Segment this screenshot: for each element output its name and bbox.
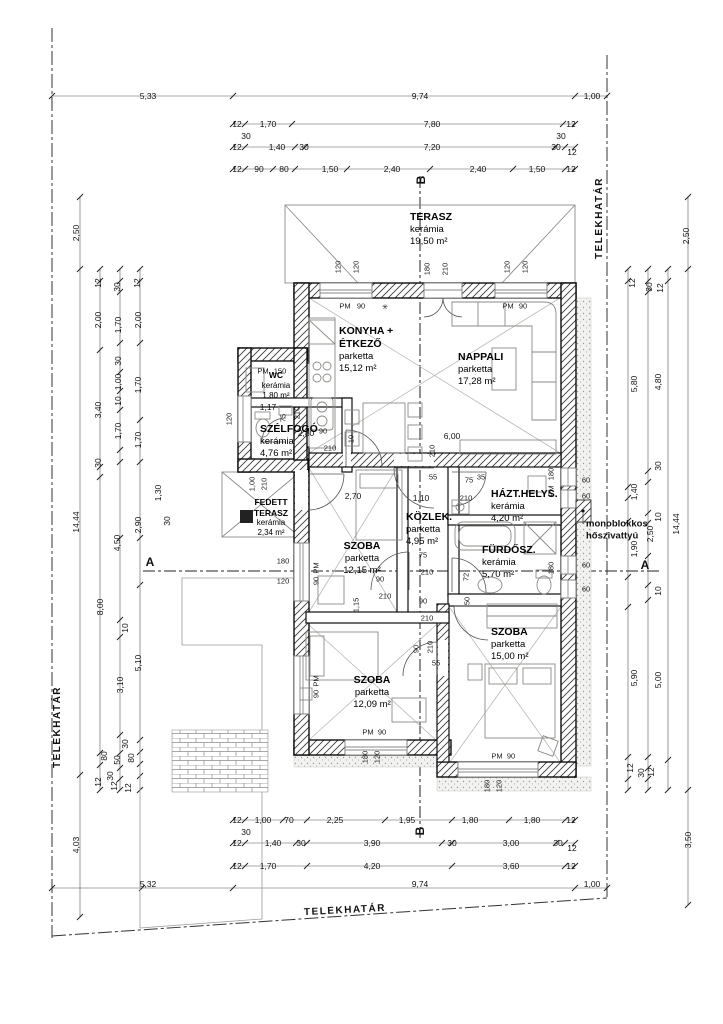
dim-label: 8,00 bbox=[96, 599, 105, 616]
dim-label: 12 bbox=[232, 165, 241, 174]
dim-label: 1,17 bbox=[260, 403, 277, 412]
detail-label: 35 bbox=[477, 473, 485, 481]
dim-label: 1,40 bbox=[630, 484, 639, 501]
dim-label: 30 bbox=[106, 771, 115, 780]
dim-label: 12 bbox=[232, 143, 241, 152]
dim-label: 2,25 bbox=[327, 816, 344, 825]
section-marker: A bbox=[146, 556, 155, 568]
dim-label: 30 bbox=[114, 356, 123, 365]
dim-label: 30 bbox=[296, 839, 305, 848]
dim-label: 5,90 bbox=[630, 670, 639, 687]
dim-label: 1,00 bbox=[114, 374, 123, 391]
dim-label: 3,60 bbox=[503, 862, 520, 871]
dim-label: 5,32 bbox=[140, 880, 157, 889]
dim-label: 2,40 bbox=[470, 165, 487, 174]
dim-label: 80 bbox=[127, 753, 136, 762]
dim-label: 30 bbox=[241, 132, 250, 141]
detail-label: 180 bbox=[277, 557, 290, 565]
dim-label: 12 bbox=[110, 781, 119, 790]
dim-label: 12 bbox=[232, 120, 241, 129]
detail-label: 75 bbox=[279, 414, 287, 422]
dim-label: 3,50 bbox=[684, 832, 693, 849]
detail-label: 210 bbox=[260, 478, 268, 491]
dim-label: 12 bbox=[566, 816, 575, 825]
dim-label: 9,74 bbox=[412, 880, 429, 889]
detail-label: 120 bbox=[334, 261, 342, 274]
dim-label: 30 bbox=[299, 143, 308, 152]
detail-label: 180 bbox=[547, 468, 555, 481]
detail-label: PM bbox=[312, 675, 320, 686]
dim-label: 30 bbox=[556, 132, 565, 141]
dim-label: 5,33 bbox=[140, 92, 157, 101]
detail-label: 90 bbox=[378, 728, 386, 736]
dim-label: 5,10 bbox=[134, 655, 143, 672]
dim-label: 6,00 bbox=[444, 432, 461, 441]
detail-label: 210 bbox=[441, 263, 449, 276]
dim-label: 12 bbox=[232, 816, 241, 825]
dim-label: 30 bbox=[241, 828, 250, 837]
room-label: FEDETTTERASZkerámia2,34 m² bbox=[254, 497, 288, 538]
dim-label: 90 bbox=[254, 165, 263, 174]
dim-label: 12 bbox=[566, 862, 575, 871]
detail-label: 60 bbox=[582, 561, 590, 569]
detail-label: 180 bbox=[423, 263, 431, 276]
detail-label: 120 bbox=[495, 780, 503, 793]
detail-label: 90 bbox=[312, 690, 320, 698]
dim-label: 1,40 bbox=[269, 143, 286, 152]
dim-label: 1,00 bbox=[584, 92, 601, 101]
dim-label: 3,10 bbox=[116, 677, 125, 694]
detail-label: 120 bbox=[503, 261, 511, 274]
detail-label: 90 bbox=[519, 302, 527, 310]
room-label: SZOBAparketta12,09 m² bbox=[353, 674, 391, 711]
detail-label: 180 bbox=[547, 562, 555, 575]
detail-label: 90 bbox=[319, 427, 327, 435]
detail-label: 120 bbox=[225, 413, 233, 426]
dim-label: 9,74 bbox=[412, 92, 429, 101]
detail-label: ✳ bbox=[382, 303, 388, 311]
dim-label: 2,70 bbox=[345, 492, 362, 501]
dim-label: 10 bbox=[121, 623, 130, 632]
dim-label: 12 bbox=[566, 165, 575, 174]
room-label: NAPPALIparketta17,28 m² bbox=[458, 351, 503, 388]
floor-plan-page: 5,339,741,00121,707,80123030121,40307,20… bbox=[0, 0, 723, 1024]
detail-label: 55 bbox=[432, 659, 440, 667]
dim-label: 12 bbox=[124, 783, 133, 792]
dim-label: 12 bbox=[626, 763, 635, 772]
dim-label: 14,44 bbox=[672, 513, 681, 534]
dim-label: 12 bbox=[567, 844, 576, 853]
dim-label: 1,10 bbox=[413, 494, 430, 503]
detail-label: 75 bbox=[419, 551, 427, 559]
boundary-label: TELEKHATÁR bbox=[304, 904, 386, 918]
dim-label: 80 bbox=[100, 751, 109, 760]
dim-label: 1,50 bbox=[322, 165, 339, 174]
dim-label: 12 bbox=[94, 777, 103, 786]
detail-label: 210 bbox=[428, 445, 436, 458]
room-label: KÖZLEK.parketta4,95 m² bbox=[406, 511, 452, 548]
dim-label: 3,00 bbox=[503, 839, 520, 848]
dim-label: 30 bbox=[637, 768, 646, 777]
detail-label: 210 bbox=[293, 407, 301, 420]
dim-label: 1,00 bbox=[584, 880, 601, 889]
detail-label: 90 bbox=[312, 577, 320, 585]
dim-label: 30 bbox=[551, 143, 560, 152]
dim-label: 1,70 bbox=[114, 423, 123, 440]
dim-label: 1,70 bbox=[260, 120, 277, 129]
dim-label: 4,50 bbox=[113, 535, 122, 552]
dim-label: 12 bbox=[94, 278, 103, 287]
dim-label: 12 bbox=[566, 120, 575, 129]
boundary-label: TELEKHATÁR bbox=[595, 177, 605, 259]
room-label: SZOBAparketta15,00 m² bbox=[491, 626, 529, 663]
room-label: KONYHA +ÉTKEZŐparketta15,12 m² bbox=[339, 325, 393, 375]
dim-label: 30 bbox=[163, 516, 172, 525]
dim-label: 12 bbox=[628, 278, 637, 287]
detail-label: 120 bbox=[352, 261, 360, 274]
dim-label: 1,40 bbox=[265, 839, 282, 848]
detail-label: PM bbox=[502, 302, 513, 310]
detail-label: 120 bbox=[521, 261, 529, 274]
detail-label: 210 bbox=[421, 568, 434, 576]
detail-label: 50 bbox=[463, 597, 471, 605]
dim-label: 4,03 bbox=[72, 837, 81, 854]
dim-label: 1,70 bbox=[260, 862, 277, 871]
detail-label: 90 bbox=[507, 752, 515, 760]
detail-label: 72 bbox=[462, 573, 470, 581]
detail-label: PM bbox=[362, 728, 373, 736]
dim-label: 1,00 bbox=[255, 816, 272, 825]
detail-label: 75 bbox=[465, 476, 473, 484]
dim-label: 1,30 bbox=[154, 485, 163, 502]
dim-label: 12 bbox=[232, 839, 241, 848]
dim-label: 1,70 bbox=[134, 432, 143, 449]
dim-label: 10 bbox=[114, 396, 123, 405]
detail-label: PM bbox=[312, 562, 320, 573]
dim-label: 7,20 bbox=[424, 143, 441, 152]
detail-label: 120 bbox=[277, 577, 290, 585]
dim-label: 70 bbox=[284, 816, 293, 825]
section-marker: B bbox=[414, 827, 426, 836]
room-label: TERASZkerámia19,50 m² bbox=[410, 211, 452, 248]
dim-label: 5,00 bbox=[654, 672, 663, 689]
section-marker: A bbox=[641, 559, 650, 571]
detail-label: PM bbox=[339, 302, 350, 310]
dim-label: 30 bbox=[447, 839, 456, 848]
room-label: SZÉLFOGÓkerámia4,76 m² bbox=[260, 423, 318, 460]
dim-label: 1,70 bbox=[134, 377, 143, 394]
detail-label: 210 bbox=[324, 444, 337, 452]
dim-label: 10 bbox=[654, 512, 663, 521]
dim-label: 2,00 bbox=[134, 312, 143, 329]
detail-label: 90 bbox=[419, 597, 427, 605]
dim-label: 1,70 bbox=[114, 317, 123, 334]
detail-label: 55 bbox=[429, 473, 437, 481]
dim-label: 3,40 bbox=[94, 402, 103, 419]
dim-label: 12 bbox=[656, 283, 665, 292]
annotation: monoblokkos bbox=[586, 519, 648, 529]
label-layer: 5,339,741,00121,707,80123030121,40307,20… bbox=[0, 0, 723, 1024]
detail-label: 180 bbox=[483, 780, 491, 793]
detail-label: 1,15 bbox=[352, 598, 360, 613]
room-label: FÜRDŐSZ.kerámia5,70 m² bbox=[482, 544, 536, 581]
dim-label: 2,90 bbox=[134, 517, 143, 534]
detail-label: 120 bbox=[373, 751, 381, 764]
detail-label: 1,00 bbox=[248, 477, 256, 492]
dim-label: 4,80 bbox=[654, 374, 663, 391]
dim-label: 30 bbox=[113, 282, 122, 291]
detail-label: 210 bbox=[426, 641, 434, 654]
dim-label: 3,90 bbox=[364, 839, 381, 848]
dim-label: 5,80 bbox=[630, 376, 639, 393]
dim-label: 30 bbox=[654, 461, 663, 470]
detail-label: 60 bbox=[582, 476, 590, 484]
dim-label: 4,20 bbox=[364, 862, 381, 871]
dim-label: 12 bbox=[647, 767, 656, 776]
dim-label: 14,44 bbox=[72, 511, 81, 532]
dim-label: 2,50 bbox=[72, 225, 81, 242]
detail-label: 10 bbox=[347, 435, 355, 443]
dim-label: 12 bbox=[567, 148, 576, 157]
dim-label: 1,80 bbox=[524, 816, 541, 825]
room-label: HÁZT.HELYS.kerámia4,20 m² bbox=[491, 488, 558, 525]
dim-label: 30 bbox=[553, 839, 562, 848]
dim-label: 12 bbox=[133, 278, 142, 287]
room-label: WCkerámia1,80 m² bbox=[262, 370, 290, 401]
dim-label: 50 bbox=[113, 755, 122, 764]
annotation: hőszivattyú bbox=[586, 531, 638, 541]
dim-label: 2,40 bbox=[384, 165, 401, 174]
dim-label: 1,90 bbox=[630, 541, 639, 558]
dim-label: 1,50 bbox=[529, 165, 546, 174]
room-label: SZOBAparketta12,15 m² bbox=[343, 540, 381, 577]
dim-label: 7,80 bbox=[424, 120, 441, 129]
dim-label: 30 bbox=[645, 282, 654, 291]
dim-label: 1,95 bbox=[399, 816, 416, 825]
detail-label: 210 bbox=[379, 592, 392, 600]
detail-label: 90 bbox=[357, 302, 365, 310]
dim-label: 80 bbox=[279, 165, 288, 174]
dim-label: 2,00 bbox=[94, 312, 103, 329]
detail-label: 210 bbox=[460, 494, 473, 502]
boundary-label: TELEKHATÁR bbox=[53, 686, 63, 768]
dim-label: 30 bbox=[121, 739, 130, 748]
dim-label: 30 bbox=[94, 458, 103, 467]
detail-label: PM bbox=[491, 752, 502, 760]
detail-label: 60 bbox=[582, 585, 590, 593]
dim-label: 10 bbox=[654, 586, 663, 595]
detail-label: 60 bbox=[582, 492, 590, 500]
dim-label: 12 bbox=[232, 862, 241, 871]
detail-label: 90 bbox=[412, 645, 420, 653]
dim-label: 1,80 bbox=[462, 816, 479, 825]
detail-label: 180 bbox=[361, 751, 369, 764]
detail-label: 210 bbox=[421, 614, 434, 622]
dim-label: 2,50 bbox=[682, 228, 691, 245]
section-marker: B bbox=[415, 176, 427, 185]
